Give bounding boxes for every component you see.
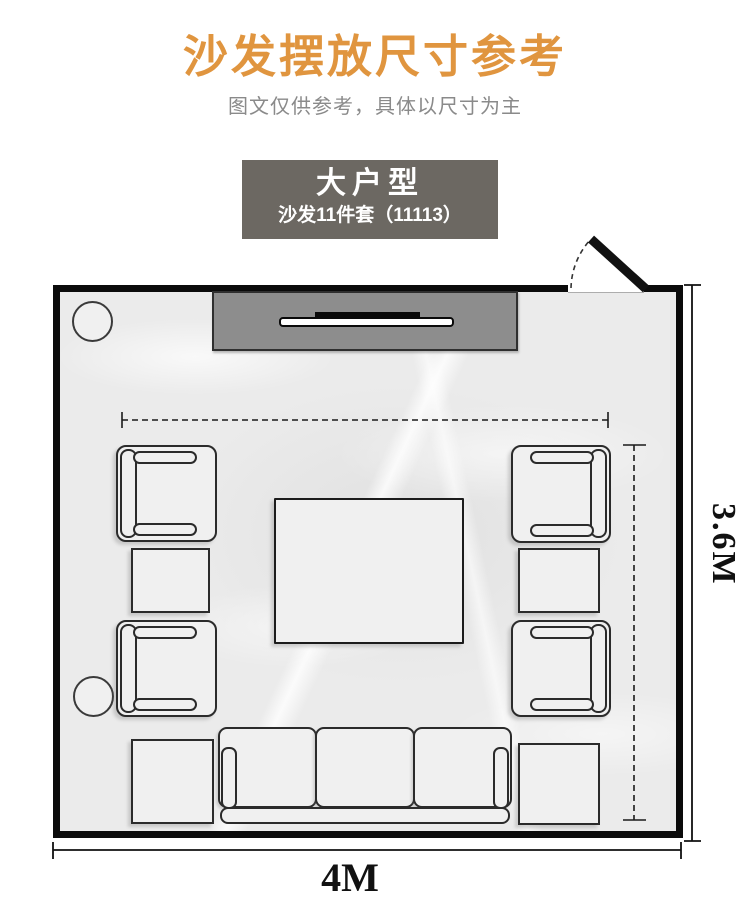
armchair-armrest: [133, 626, 197, 639]
door-opening: [568, 285, 644, 293]
page-subtitle: 图文仅供参考，具体以尺寸为主: [0, 90, 750, 119]
armchair-backrest: [590, 449, 607, 538]
armchair-left-top: [116, 445, 217, 542]
ottoman-bottom-right: [518, 743, 600, 825]
sofa-armrest-left: [221, 747, 237, 809]
type-card-subtitle: 沙发11件套（11113）: [242, 203, 498, 229]
depth-dimension-line: [684, 285, 701, 841]
side-table-right: [518, 548, 600, 613]
armchair-armrest: [530, 451, 594, 464]
armchair-right-top: [511, 445, 611, 543]
type-card: 大户型 沙发11件套（11113）: [242, 160, 498, 239]
sofa-front-edge: [220, 807, 510, 824]
depth-dimension-label: 3.6M: [704, 503, 742, 586]
width-dimension-label: 4M: [40, 854, 660, 901]
sofa-cushion: [315, 727, 415, 808]
armchair-armrest: [133, 451, 197, 464]
page-title: 沙发摆放尺寸参考: [0, 20, 750, 85]
round-stool-top-left: [72, 301, 113, 342]
door-leaf: [591, 239, 646, 289]
armchair-right-bottom: [511, 620, 611, 717]
armchair-armrest: [530, 524, 594, 537]
armchair-armrest: [530, 626, 594, 639]
sofa-size-reference-infographic: 沙发摆放尺寸参考 图文仅供参考，具体以尺寸为主 大户型 沙发11件套（11113…: [0, 0, 750, 914]
round-stool-bottom-left: [73, 676, 114, 717]
ottoman-bottom-left: [131, 739, 214, 824]
tv: [279, 317, 454, 327]
type-card-title: 大户型: [242, 165, 498, 203]
coffee-table: [274, 498, 464, 644]
three-seat-sofa: [218, 727, 512, 828]
door-swing-arc: [571, 239, 591, 288]
armchair-armrest: [133, 698, 197, 711]
armchair-left-bottom: [116, 620, 217, 717]
armchair-armrest: [133, 523, 197, 536]
side-table-left: [131, 548, 210, 613]
armchair-armrest: [530, 698, 594, 711]
sofa-armrest-right: [493, 747, 509, 809]
